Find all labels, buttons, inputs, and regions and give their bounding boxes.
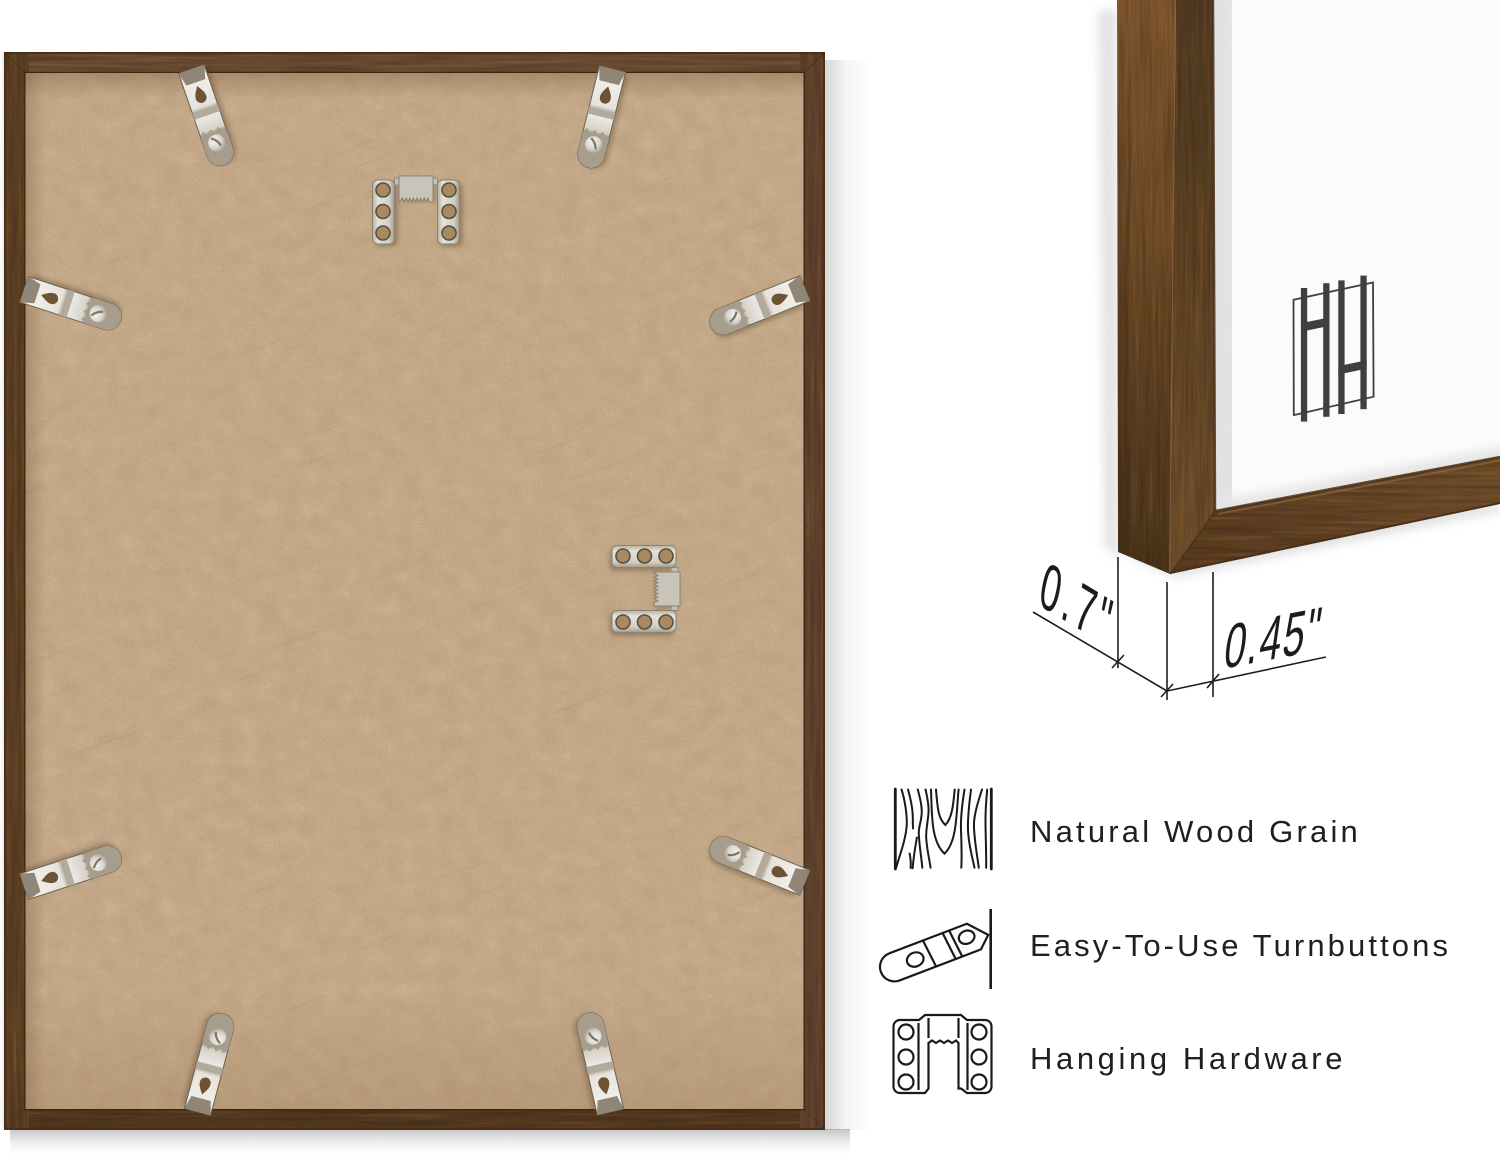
svg-text:Hanging Hardware: Hanging Hardware bbox=[1030, 1041, 1346, 1076]
svg-text:0.7": 0.7" bbox=[1034, 549, 1121, 662]
svg-text:Easy-To-Use Turnbuttons: Easy-To-Use Turnbuttons bbox=[1030, 928, 1451, 963]
svg-text:Natural Wood Grain: Natural Wood Grain bbox=[1030, 814, 1361, 849]
svg-text:0.45": 0.45" bbox=[1220, 594, 1327, 683]
